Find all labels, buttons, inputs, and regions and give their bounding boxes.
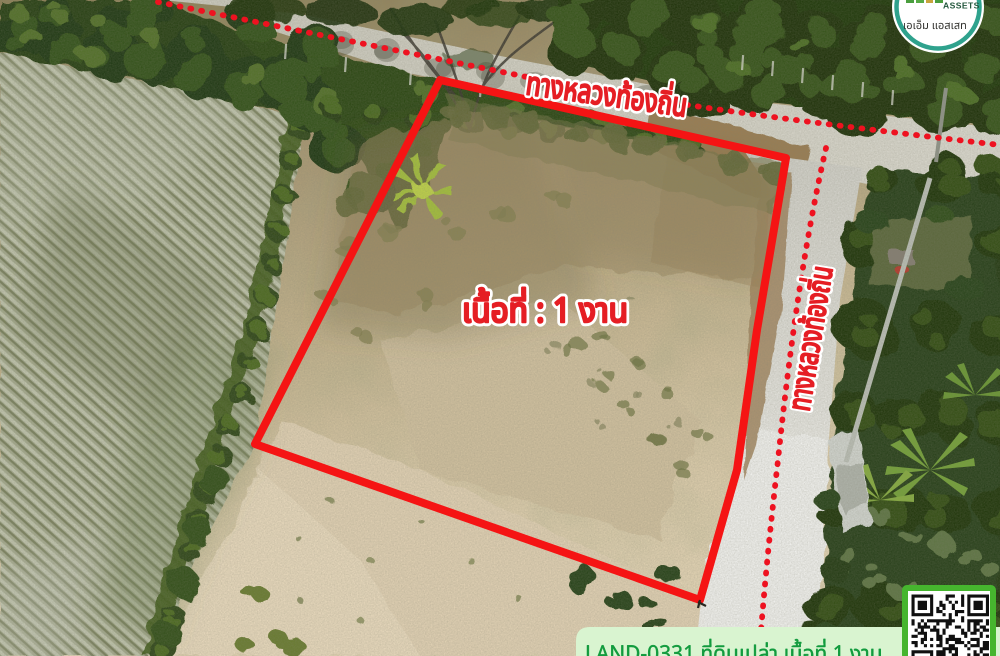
svg-text:ASSETS: ASSETS bbox=[943, 1, 980, 11]
